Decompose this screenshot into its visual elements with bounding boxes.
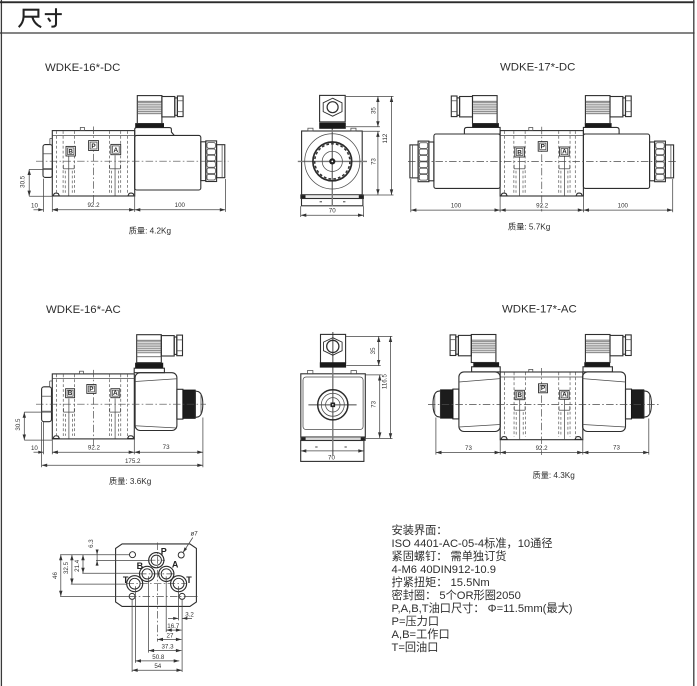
svg-text:P: P bbox=[89, 386, 94, 393]
svg-text:100: 100 bbox=[451, 203, 462, 210]
svg-text:175.2: 175.2 bbox=[125, 458, 141, 465]
svg-text:B: B bbox=[137, 561, 144, 571]
svg-text:112: 112 bbox=[382, 133, 389, 143]
svg-text:P,A,B,T油口尺寸： Φ=11.5mm(最大): P,A,B,T油口尺寸： Φ=11.5mm(最大) bbox=[392, 601, 573, 615]
svg-text:92.2: 92.2 bbox=[536, 445, 549, 452]
svg-text:拧紧扭矩： 15.5Nm: 拧紧扭矩： 15.5Nm bbox=[392, 575, 490, 589]
svg-text:10: 10 bbox=[31, 202, 38, 209]
svg-text:116.5: 116.5 bbox=[381, 374, 388, 390]
svg-text:100: 100 bbox=[618, 203, 629, 210]
svg-text:安装界面：: 安装界面： bbox=[392, 523, 448, 537]
svg-text:A: A bbox=[172, 560, 179, 570]
svg-text:100: 100 bbox=[175, 202, 186, 209]
svg-text:WDKE-16*-AC: WDKE-16*-AC bbox=[46, 304, 121, 316]
svg-text:92.2: 92.2 bbox=[87, 202, 100, 209]
svg-text:B: B bbox=[517, 149, 522, 156]
svg-text:密封圈： 5个OR形圈2050: 密封圈： 5个OR形圈2050 bbox=[392, 588, 521, 602]
svg-text:紧固螺钉： 需单独订货: 紧固螺钉： 需单独订货 bbox=[392, 549, 507, 563]
svg-text:92.2: 92.2 bbox=[88, 445, 101, 452]
svg-text:A,B=工作口: A,B=工作口 bbox=[392, 628, 450, 641]
svg-text:3.2: 3.2 bbox=[185, 611, 194, 618]
svg-text:70: 70 bbox=[329, 208, 336, 215]
svg-text:4-M6 40DIN912-10.9: 4-M6 40DIN912-10.9 bbox=[392, 564, 496, 576]
svg-text:92.2: 92.2 bbox=[536, 202, 549, 209]
svg-text:27: 27 bbox=[167, 632, 174, 639]
svg-text:54: 54 bbox=[154, 663, 161, 670]
svg-text:30.5: 30.5 bbox=[15, 418, 22, 431]
svg-text:质量: 5.7Kg: 质量: 5.7Kg bbox=[508, 221, 551, 231]
svg-text:46: 46 bbox=[52, 572, 59, 579]
svg-text:73: 73 bbox=[163, 444, 170, 451]
svg-text:37.3: 37.3 bbox=[161, 644, 174, 651]
svg-text:73: 73 bbox=[370, 158, 377, 165]
svg-text:B: B bbox=[68, 390, 73, 397]
svg-text:T: T bbox=[186, 575, 192, 585]
svg-text:73: 73 bbox=[613, 445, 620, 452]
svg-text:T: T bbox=[123, 575, 129, 585]
svg-text:50.8: 50.8 bbox=[152, 654, 165, 661]
svg-text:B: B bbox=[517, 392, 522, 399]
svg-text:A: A bbox=[113, 147, 118, 154]
svg-text:35: 35 bbox=[370, 107, 377, 114]
svg-text:P: P bbox=[91, 143, 96, 150]
svg-text:ISO 4401-AC-05-4标准，10通径: ISO 4401-AC-05-4标准，10通径 bbox=[392, 537, 553, 550]
svg-text:30.5: 30.5 bbox=[19, 175, 26, 188]
svg-text:A: A bbox=[113, 390, 118, 397]
svg-text:T=回油口: T=回油口 bbox=[392, 640, 439, 654]
svg-text:73: 73 bbox=[371, 400, 378, 407]
svg-text:73: 73 bbox=[465, 445, 472, 452]
svg-text:质量: 3.6Kg: 质量: 3.6Kg bbox=[109, 476, 152, 486]
svg-text:35: 35 bbox=[370, 347, 377, 354]
svg-text:ø7: ø7 bbox=[191, 531, 199, 538]
svg-text:P=压力口: P=压力口 bbox=[392, 615, 440, 628]
svg-text:WDKE-16*-DC: WDKE-16*-DC bbox=[45, 62, 120, 74]
svg-text:21.4: 21.4 bbox=[74, 559, 81, 572]
svg-text:P: P bbox=[541, 144, 546, 151]
svg-text:WDKE-17*-AC: WDKE-17*-AC bbox=[502, 304, 577, 316]
svg-text:WDKE-17*-DC: WDKE-17*-DC bbox=[500, 62, 575, 74]
svg-text:6.3: 6.3 bbox=[88, 539, 95, 548]
svg-text:P: P bbox=[161, 547, 167, 557]
svg-text:70: 70 bbox=[328, 454, 335, 461]
svg-text:质量: 4.2Kg: 质量: 4.2Kg bbox=[129, 226, 172, 236]
svg-text:A: A bbox=[562, 392, 567, 399]
svg-text:P: P bbox=[541, 385, 546, 392]
svg-text:质量: 4.3Kg: 质量: 4.3Kg bbox=[533, 470, 576, 480]
svg-text:B: B bbox=[68, 148, 73, 155]
svg-text:32.5: 32.5 bbox=[63, 561, 70, 574]
svg-text:A: A bbox=[562, 149, 567, 156]
svg-text:16.7: 16.7 bbox=[167, 623, 180, 630]
svg-text:10: 10 bbox=[31, 445, 38, 452]
